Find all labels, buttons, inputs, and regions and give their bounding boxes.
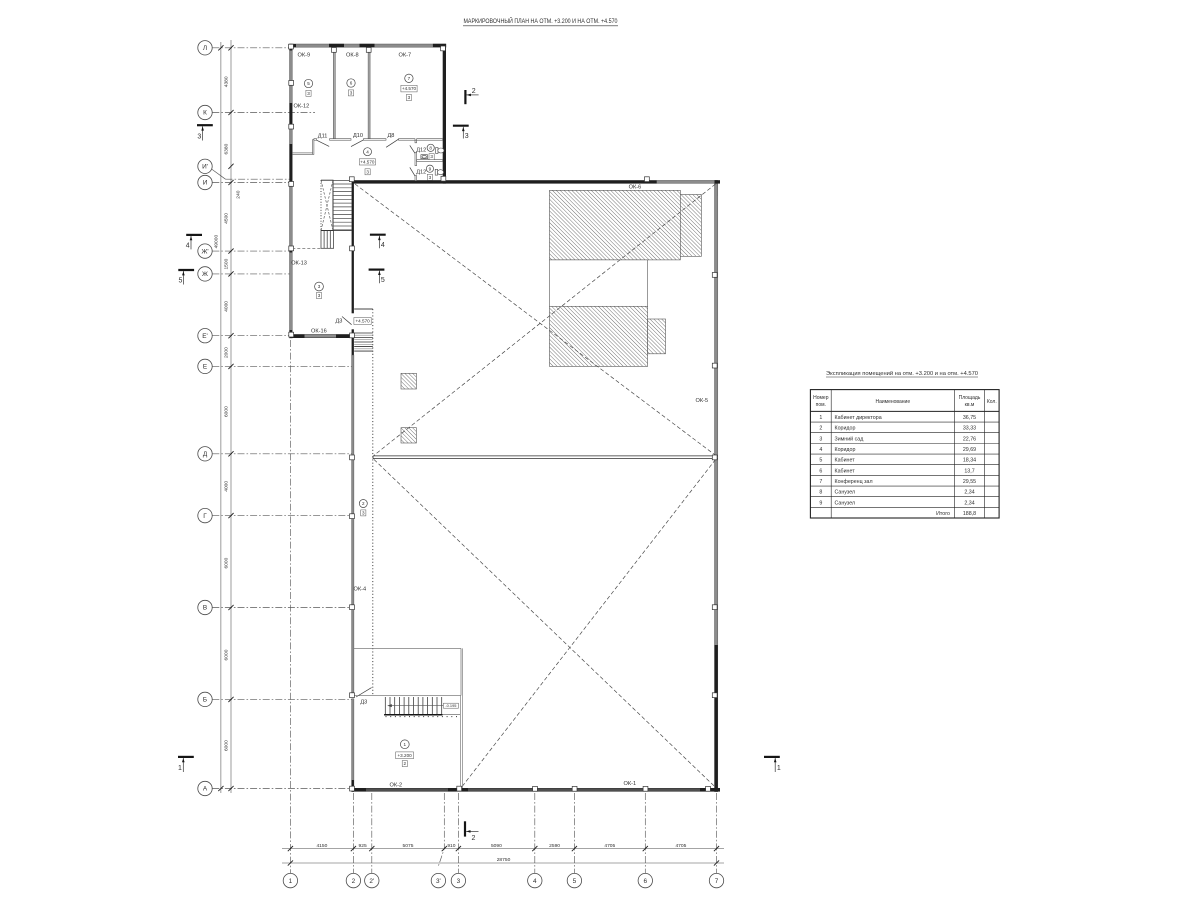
svg-text:6000: 6000 xyxy=(223,649,229,660)
svg-text:Д3: Д3 xyxy=(336,318,343,324)
svg-text:3: 3 xyxy=(362,510,365,515)
svg-text:5075: 5075 xyxy=(403,843,414,849)
svg-text:4: 4 xyxy=(533,878,537,885)
svg-text:29,55: 29,55 xyxy=(963,479,976,485)
svg-text:28750: 28750 xyxy=(497,857,511,863)
svg-text:Санузел: Санузел xyxy=(835,500,856,506)
svg-text:В: В xyxy=(203,605,207,612)
svg-text:9: 9 xyxy=(819,500,822,506)
svg-text:А: А xyxy=(203,786,208,793)
svg-text:6: 6 xyxy=(644,878,648,885)
svg-text:1: 1 xyxy=(777,765,781,772)
svg-text:+4.570: +4.570 xyxy=(360,159,375,164)
svg-text:6: 6 xyxy=(350,81,353,86)
svg-text:5: 5 xyxy=(307,81,310,86)
svg-text:3: 3 xyxy=(197,134,201,141)
svg-text:3: 3 xyxy=(430,154,433,159)
svg-text:7: 7 xyxy=(408,76,411,81)
svg-text:3: 3 xyxy=(307,91,310,96)
svg-text:+4.570: +4.570 xyxy=(356,319,371,324)
svg-text:+4.570: +4.570 xyxy=(402,86,417,91)
svg-text:8: 8 xyxy=(429,146,432,151)
svg-text:ОК-16: ОК-16 xyxy=(311,329,327,335)
svg-text:МАРКИРОВОЧНЫЙ ПЛАН НА ОТМ. +3.: МАРКИРОВОЧНЫЙ ПЛАН НА ОТМ. +3.200 И НА О… xyxy=(464,16,618,25)
svg-text:13,7: 13,7 xyxy=(964,468,974,474)
svg-text:Д: Д xyxy=(203,451,208,458)
svg-text:2: 2 xyxy=(352,878,356,885)
svg-text:ОК-1: ОК-1 xyxy=(624,781,637,787)
svg-text:2: 2 xyxy=(404,761,407,766)
svg-text:4500: 4500 xyxy=(223,213,229,224)
svg-text:6000: 6000 xyxy=(223,406,229,417)
svg-text:188,8: 188,8 xyxy=(963,511,976,517)
svg-text:ОК-7: ОК-7 xyxy=(399,53,412,59)
svg-text:+3.200: +3.200 xyxy=(398,753,413,758)
svg-text:5090: 5090 xyxy=(491,843,502,849)
svg-text:К: К xyxy=(203,110,207,117)
svg-text:8: 8 xyxy=(819,490,822,496)
svg-text:1: 1 xyxy=(404,742,407,747)
svg-text:6: 6 xyxy=(819,468,822,474)
svg-text:ОК-8: ОК-8 xyxy=(346,53,359,59)
svg-text:И': И' xyxy=(202,164,208,171)
svg-text:Б: Б xyxy=(203,697,207,704)
svg-text:22,76: 22,76 xyxy=(963,436,976,442)
svg-text:4: 4 xyxy=(819,447,822,453)
svg-text:9: 9 xyxy=(429,166,432,171)
svg-text:5: 5 xyxy=(819,458,822,464)
svg-text:910: 910 xyxy=(447,843,455,849)
svg-text:5: 5 xyxy=(573,878,577,885)
svg-text:Наименование: Наименование xyxy=(875,399,910,405)
svg-text:Кабинет директора: Кабинет директора xyxy=(835,415,882,421)
svg-text:Коридор: Коридор xyxy=(835,447,856,453)
svg-text:3': 3' xyxy=(436,878,441,885)
svg-text:4380: 4380 xyxy=(223,76,229,87)
svg-text:49000: 49000 xyxy=(213,235,219,249)
svg-text:7: 7 xyxy=(819,479,822,485)
svg-text:Зимний сад: Зимний сад xyxy=(835,435,864,442)
svg-text:2,34: 2,34 xyxy=(964,500,974,506)
svg-text:7: 7 xyxy=(715,878,719,885)
svg-text:Экспликация помещений на отм.: Экспликация помещений на отм. +3.200 и н… xyxy=(826,370,978,377)
svg-text:Конференц зал: Конференц зал xyxy=(835,479,873,485)
svg-text:Ж': Ж' xyxy=(201,248,208,255)
svg-text:ОК-9: ОК-9 xyxy=(298,53,311,59)
svg-text:4: 4 xyxy=(366,149,369,154)
svg-text:Д3: Д3 xyxy=(360,700,367,706)
svg-text:Д10: Д10 xyxy=(353,133,363,139)
svg-text:925: 925 xyxy=(359,843,367,849)
svg-text:6000: 6000 xyxy=(223,557,229,568)
svg-text:Д8: Д8 xyxy=(388,133,395,139)
svg-text:3: 3 xyxy=(318,293,321,298)
svg-text:ОК-6: ОК-6 xyxy=(629,185,642,191)
svg-text:Номер: Номер xyxy=(813,395,829,401)
svg-text:4705: 4705 xyxy=(675,843,686,849)
svg-text:4705: 4705 xyxy=(604,843,615,849)
svg-text:ОК-5: ОК-5 xyxy=(696,398,709,404)
svg-text:пом.: пом. xyxy=(816,402,826,408)
svg-text:Г: Г xyxy=(203,513,207,520)
svg-text:4150: 4150 xyxy=(316,843,327,849)
svg-text:1500: 1500 xyxy=(223,258,229,269)
svg-text:5: 5 xyxy=(381,277,385,284)
svg-text:1: 1 xyxy=(819,415,822,421)
svg-text:-0.195: -0.195 xyxy=(445,703,456,708)
svg-text:29,69: 29,69 xyxy=(963,447,976,453)
svg-text:Л: Л xyxy=(203,45,207,52)
svg-text:1: 1 xyxy=(178,765,182,772)
svg-text:Е: Е xyxy=(203,364,207,371)
svg-text:5: 5 xyxy=(178,278,182,285)
svg-text:Площадь: Площадь xyxy=(959,395,981,401)
svg-text:6380: 6380 xyxy=(223,143,229,154)
svg-text:кв.м: кв.м xyxy=(965,402,975,408)
svg-text:2,34: 2,34 xyxy=(964,490,974,496)
svg-text:3: 3 xyxy=(465,133,469,140)
svg-text:4: 4 xyxy=(186,243,190,250)
svg-text:И: И xyxy=(203,180,208,187)
svg-text:6000: 6000 xyxy=(223,740,229,751)
svg-text:36,75: 36,75 xyxy=(963,415,976,421)
svg-text:ОК-13: ОК-13 xyxy=(291,260,307,266)
svg-text:Д12: Д12 xyxy=(416,148,426,154)
svg-text:ОК-12: ОК-12 xyxy=(294,103,310,109)
svg-text:3: 3 xyxy=(408,95,411,100)
svg-text:1: 1 xyxy=(289,878,293,885)
svg-text:Е': Е' xyxy=(202,333,207,340)
svg-text:Санузел: Санузел xyxy=(835,490,856,496)
svg-text:Кабинет: Кабинет xyxy=(835,458,856,464)
svg-text:Кол.: Кол. xyxy=(987,399,997,405)
svg-text:Д11: Д11 xyxy=(318,133,328,139)
svg-text:3: 3 xyxy=(366,169,369,174)
svg-text:3: 3 xyxy=(350,90,353,95)
svg-text:3: 3 xyxy=(318,284,321,289)
svg-text:4000: 4000 xyxy=(223,301,229,312)
svg-text:2: 2 xyxy=(472,88,476,95)
svg-text:2: 2 xyxy=(472,835,476,842)
svg-text:2': 2' xyxy=(369,878,374,885)
svg-text:Коридор: Коридор xyxy=(835,426,856,432)
svg-text:2590: 2590 xyxy=(549,843,560,849)
svg-text:3: 3 xyxy=(429,175,432,180)
svg-text:3: 3 xyxy=(819,436,822,442)
svg-text:18,34: 18,34 xyxy=(963,458,976,464)
svg-text:Итого: Итого xyxy=(936,511,950,517)
svg-text:2000: 2000 xyxy=(223,347,229,358)
svg-text:33,33: 33,33 xyxy=(963,426,976,432)
svg-text:2: 2 xyxy=(362,501,365,506)
svg-text:Д12: Д12 xyxy=(416,169,426,175)
svg-text:4: 4 xyxy=(381,242,385,249)
svg-text:ОК-4: ОК-4 xyxy=(354,587,367,593)
svg-text:ОК-2: ОК-2 xyxy=(390,782,403,788)
svg-text:240: 240 xyxy=(235,190,241,198)
svg-text:3: 3 xyxy=(457,878,461,885)
svg-text:Кабинет: Кабинет xyxy=(835,468,856,474)
svg-text:Ж: Ж xyxy=(202,271,208,278)
svg-text:4000: 4000 xyxy=(223,481,229,492)
svg-text:2: 2 xyxy=(819,426,822,432)
